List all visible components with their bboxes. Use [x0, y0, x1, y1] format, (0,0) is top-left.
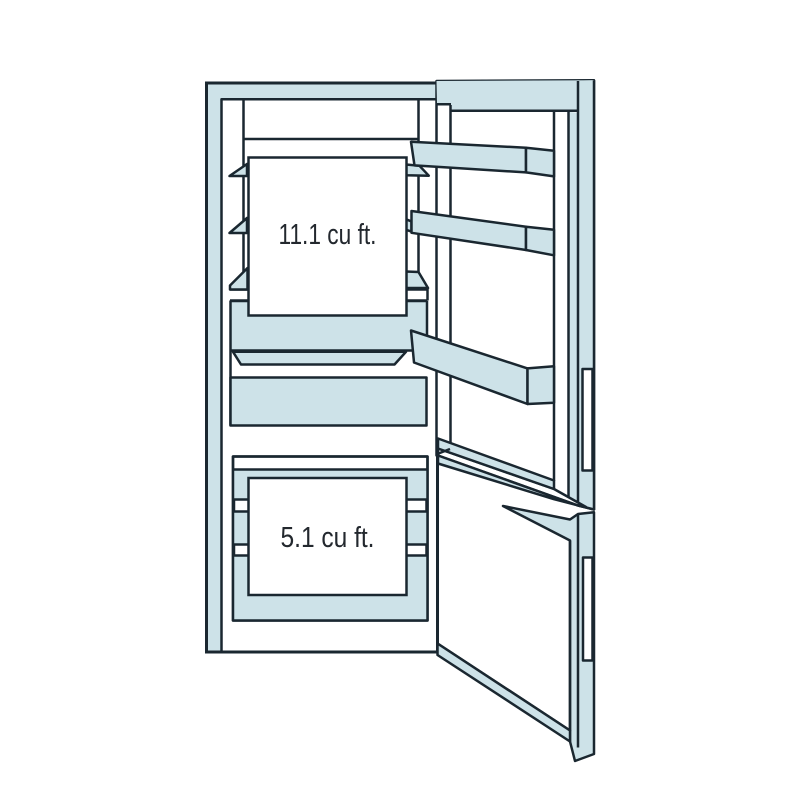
svg-text:11.1 cu ft.: 11.1 cu ft.: [279, 219, 377, 251]
svg-text:5.1 cu ft.: 5.1 cu ft.: [281, 522, 375, 554]
